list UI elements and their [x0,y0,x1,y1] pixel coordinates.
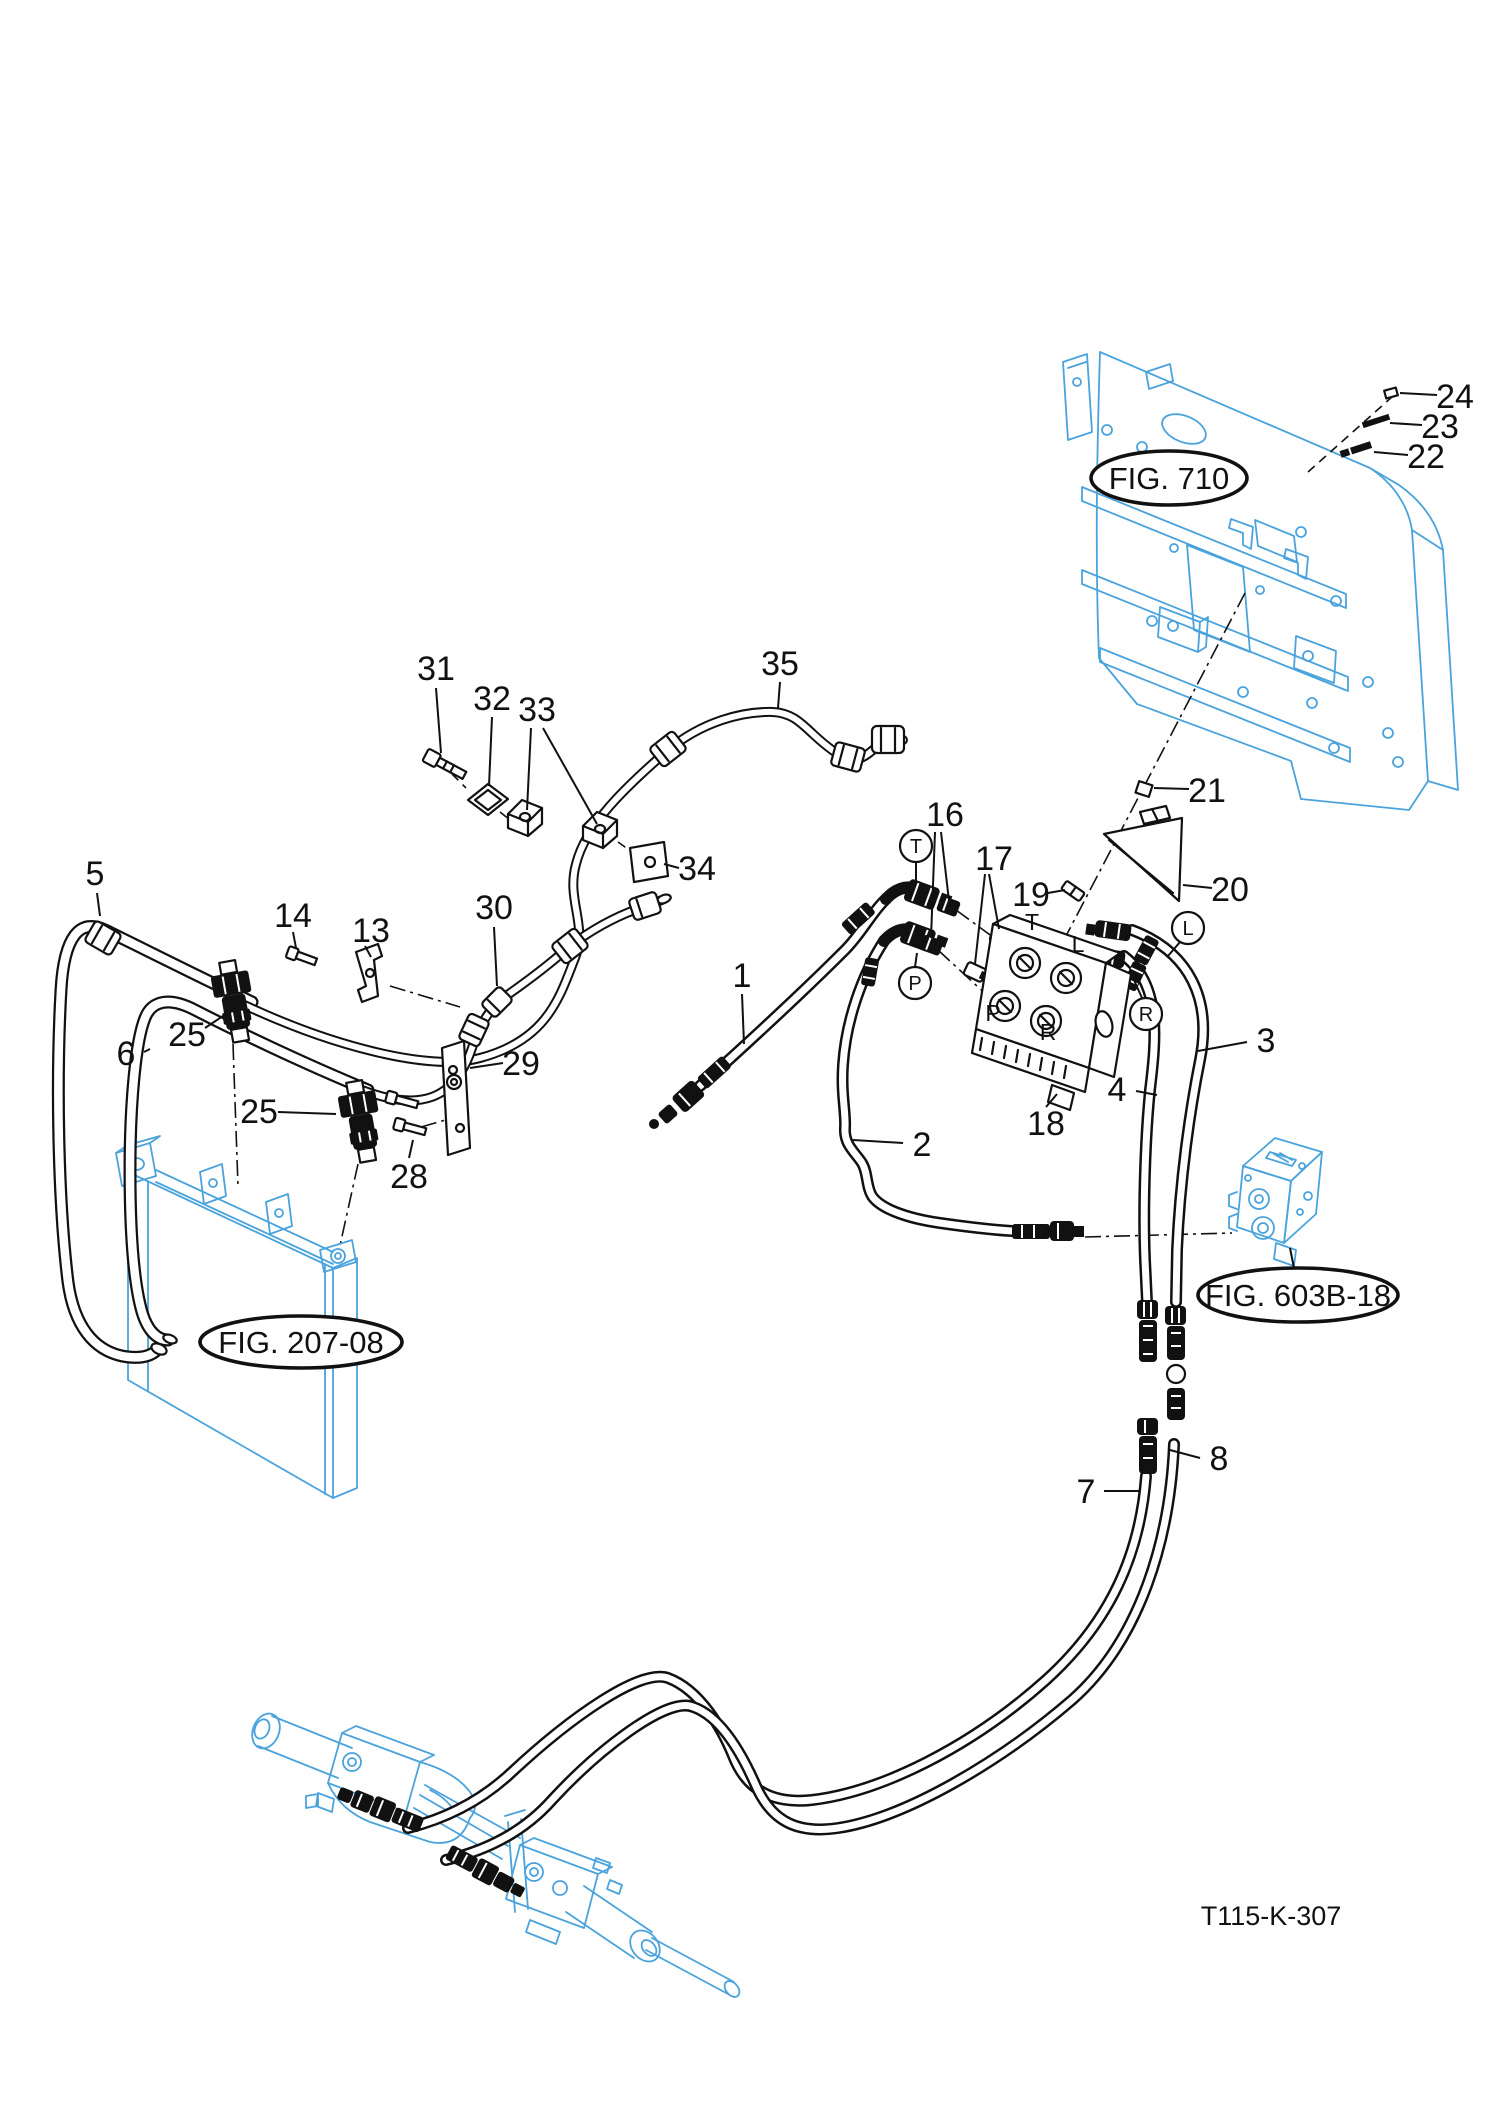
drawing-code: T115-K-307 [1201,1901,1342,1931]
callout-25-a: 25 [168,1016,206,1054]
fig710-label: FIG. 710 [1109,461,1230,496]
figure-ref-fig603b-18: FIG. 603B-18 [1198,1268,1398,1322]
callout-17: 17 [975,840,1013,878]
fig207-08-label: FIG. 207-08 [218,1325,383,1360]
callout-28: 28 [390,1158,428,1196]
hose-tag-T-label: T [910,836,922,858]
steering-cylinder-illustration [247,1709,742,1999]
firewall-panel-illustration [1063,352,1458,810]
priority-valve-illustration [1229,1138,1322,1268]
hose-tag-P-label: P [908,973,921,995]
callout-3: 3 [1257,1022,1276,1060]
construction-lines [233,396,1393,1250]
callout-16: 16 [926,796,964,834]
callout-5: 5 [86,855,105,893]
callout-31: 31 [417,650,455,688]
fig603b-18-label: FIG. 603B-18 [1205,1278,1391,1313]
callout-20: 20 [1211,871,1249,909]
hose-tag-L: L [1168,912,1204,956]
callout-6: 6 [117,1035,136,1073]
callout-14: 14 [274,897,312,935]
callout-2: 2 [913,1126,932,1164]
valve-port-P: P [985,1000,1000,1026]
callout-24: 24 [1436,378,1474,416]
parts-diagram-page: FIG. 710 FIG. 207-08 FIG. 603B-18 T P L … [0,0,1500,2121]
callout-34: 34 [678,850,716,888]
steel-line-35 [238,712,903,1062]
callout-4: 4 [1108,1071,1127,1109]
tube-union-nuts [84,726,904,1047]
callout-19: 19 [1012,876,1050,914]
callout-29: 29 [502,1045,540,1083]
callout-25-b: 25 [240,1093,278,1131]
callout-18: 18 [1027,1105,1065,1143]
callout-7: 7 [1077,1473,1096,1511]
hose-tag-P: P [899,953,931,999]
figure-ref-fig207-08: FIG. 207-08 [200,1316,402,1368]
valve-port-R: R [1040,1019,1057,1045]
hose-tag-L-label: L [1182,918,1193,940]
valve-port-L: L [1072,931,1085,957]
callout-8: 8 [1210,1440,1229,1478]
callout-21: 21 [1188,772,1226,810]
hose-tag-R-label: R [1139,1004,1153,1026]
figure-ref-fig710: FIG. 710 [1091,451,1247,505]
hose-tag-T: T [900,830,932,882]
callout-30: 30 [475,889,513,927]
hose-7 [408,1476,1146,1828]
callout-13: 13 [352,912,390,950]
callout-32: 32 [473,680,511,718]
callout-33: 33 [518,691,556,729]
callout-1: 1 [733,957,752,995]
callout-35: 35 [761,645,799,683]
